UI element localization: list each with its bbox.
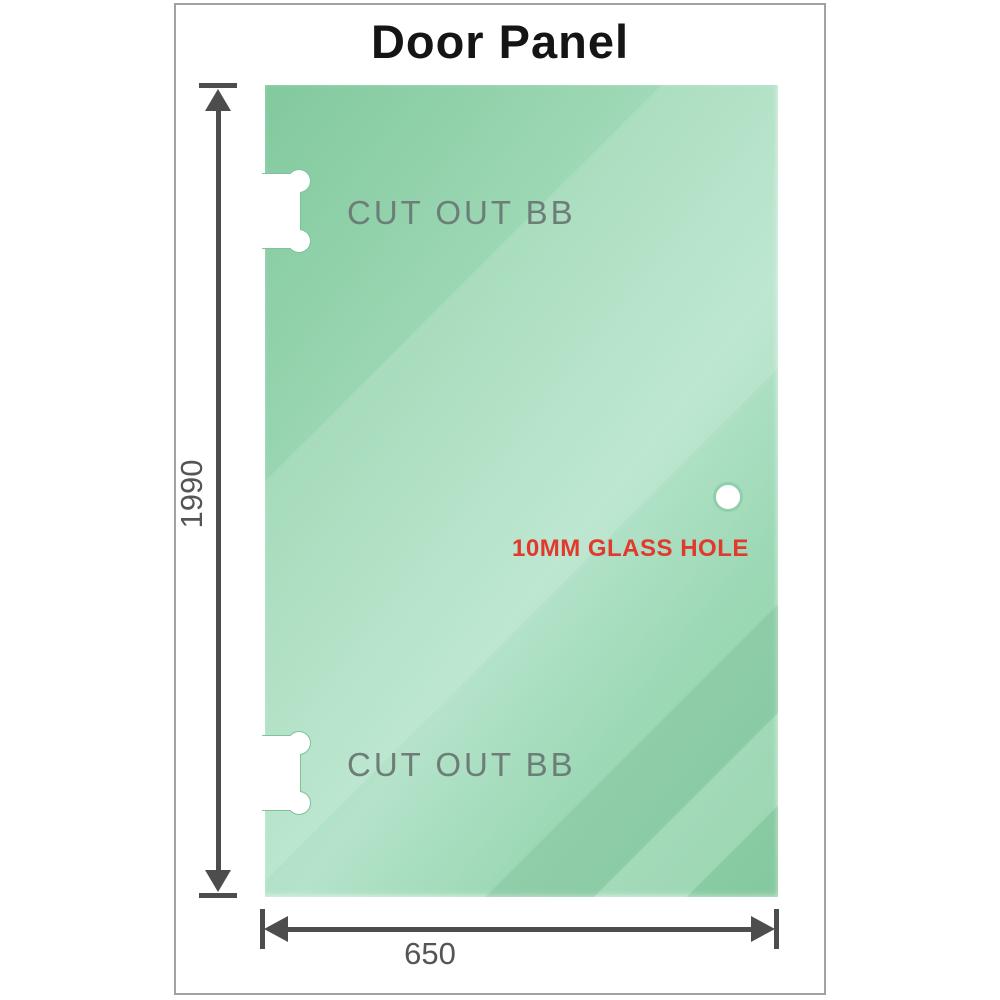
cutout-notch-top-icon bbox=[262, 167, 314, 255]
width-dimension-line bbox=[272, 927, 766, 932]
width-dimension-label: 650 bbox=[375, 936, 485, 972]
glass-hole-label: 10MM GLASS HOLE bbox=[512, 535, 749, 563]
cutout-top-label: CUT OUT BB bbox=[347, 194, 576, 232]
glass-hole-icon bbox=[713, 482, 743, 512]
cutout-notch-bottom-icon bbox=[262, 729, 314, 817]
arrow-left-icon bbox=[264, 916, 288, 942]
cutout-bottom-label: CUT OUT BB bbox=[347, 746, 576, 784]
height-dimension-top-cap bbox=[199, 83, 237, 88]
page-title: Door Panel bbox=[174, 14, 826, 69]
height-dimension-label: 1990 bbox=[174, 439, 212, 549]
height-dimension-bottom-cap bbox=[199, 893, 237, 898]
arrow-up-icon bbox=[205, 89, 231, 111]
arrow-right-icon bbox=[751, 916, 775, 942]
arrow-down-icon bbox=[205, 870, 231, 892]
height-dimension-line bbox=[216, 97, 221, 885]
door-panel-diagram: Door Panel CUT OUT BB CUT OUT BB bbox=[0, 0, 1000, 1000]
